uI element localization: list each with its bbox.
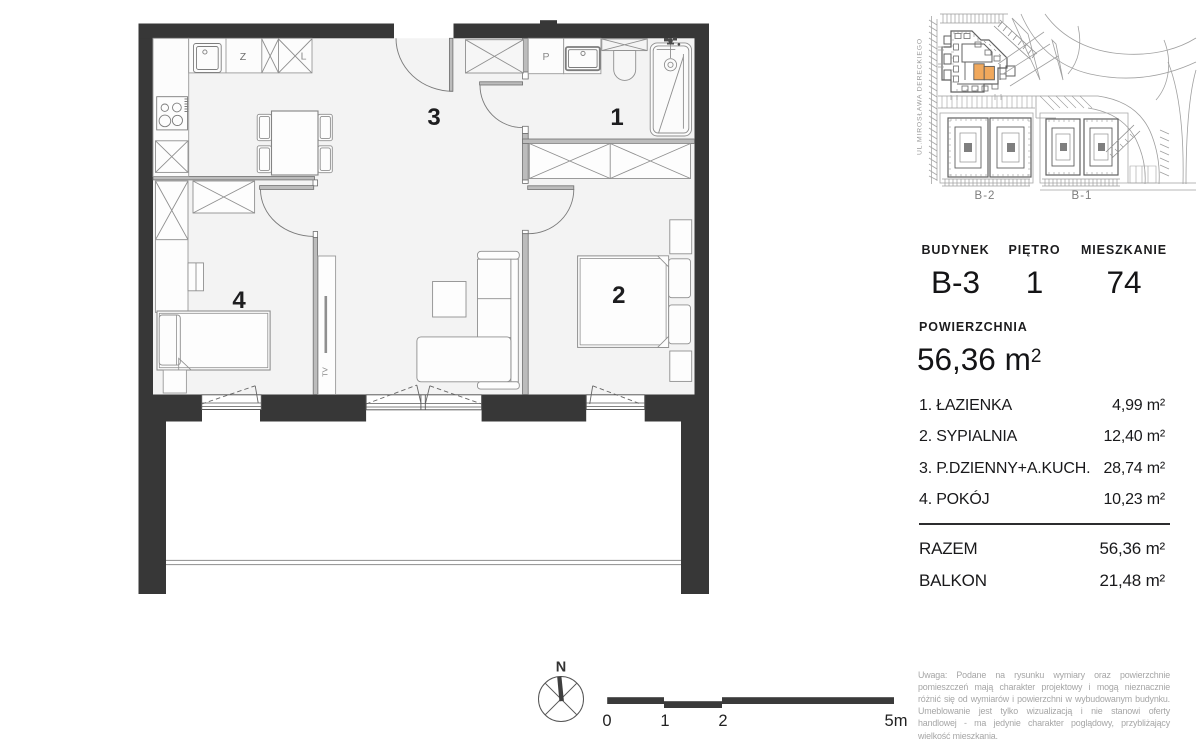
svg-text:3: 3 [427,104,440,131]
svg-text:0: 0 [602,712,611,730]
svg-text:5m: 5m [885,712,908,730]
svg-text:4: 4 [232,287,246,314]
svg-text:2: 2 [718,712,727,730]
svg-text:P: P [542,51,549,63]
svg-text:TV: TV [321,367,330,377]
svg-text:2: 2 [612,282,625,309]
svg-text:1: 1 [610,104,623,131]
svg-text:L: L [301,51,307,63]
svg-text:Z: Z [240,51,247,63]
svg-text:1: 1 [660,712,669,730]
svg-text:N: N [556,660,566,676]
